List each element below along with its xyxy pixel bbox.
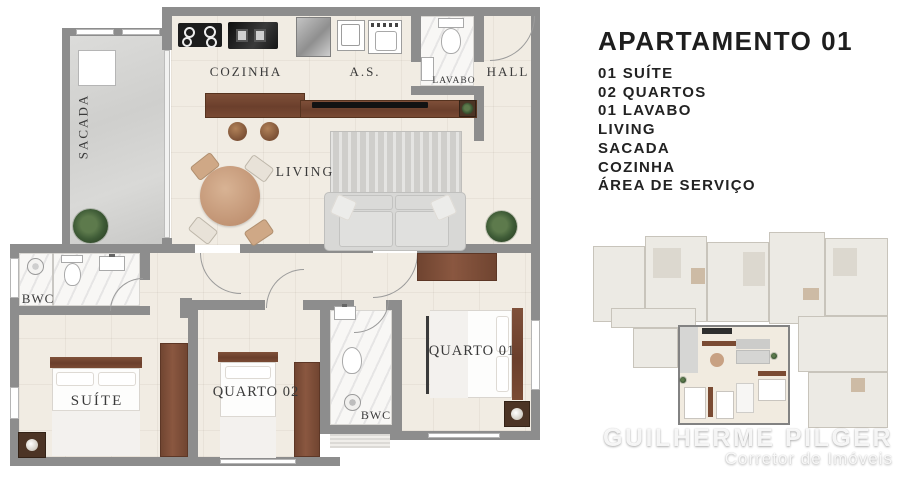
kitchen-counter bbox=[205, 93, 305, 118]
lavabo-toilet bbox=[438, 18, 464, 28]
quarto01-wardrobe bbox=[417, 253, 497, 281]
mini-plan-cell bbox=[808, 372, 888, 428]
wall-lavabo-hall bbox=[474, 7, 484, 62]
watermark-broker-title: Corretor de Imóveis bbox=[725, 449, 893, 469]
feature-item: 02 QUARTOS bbox=[598, 84, 756, 103]
wall-kitchen-left bbox=[162, 7, 172, 50]
label-hall: HALL bbox=[480, 65, 536, 78]
shower-head-icon bbox=[27, 258, 44, 275]
label-living: LIVING bbox=[260, 165, 350, 179]
building-overview-plan bbox=[593, 228, 895, 432]
quarto01-window-bottom bbox=[428, 433, 500, 438]
burner-icon bbox=[182, 37, 192, 47]
suite-nightstand bbox=[18, 432, 46, 458]
feature-item: ÁREA DE SERVIÇO bbox=[598, 177, 756, 196]
mini-plan-cell bbox=[633, 328, 678, 368]
floor-plan: SACADA COZINHA A.S. LAVABO HALL LIVING B… bbox=[0, 0, 560, 482]
counter-stool bbox=[260, 122, 279, 141]
feature-item: 01 SUÍTE bbox=[598, 65, 756, 84]
sink-bowl-icon bbox=[236, 29, 248, 42]
decor-plant-pot bbox=[459, 100, 476, 117]
wall-balcony-left bbox=[62, 28, 70, 247]
feature-item: COZINHA bbox=[598, 159, 756, 178]
suite-window bbox=[10, 387, 19, 419]
lamp-icon bbox=[511, 408, 523, 420]
balcony-window-2 bbox=[122, 29, 160, 35]
fridge bbox=[296, 17, 331, 57]
quarto02-bed-headboard bbox=[218, 352, 278, 362]
balcony-corner-window bbox=[78, 50, 116, 86]
mini-bwc bbox=[736, 383, 754, 413]
mini-wardrobe bbox=[758, 371, 786, 376]
feature-item: SACADA bbox=[598, 140, 756, 159]
mini-bed bbox=[716, 391, 734, 419]
mini-table bbox=[710, 353, 724, 367]
bwc-social-toilet-bowl bbox=[342, 347, 362, 374]
quarto01-nightstand bbox=[504, 401, 530, 427]
floorplan-marketing-image: SACADA COZINHA A.S. LAVABO HALL LIVING B… bbox=[0, 0, 900, 482]
wall-quarto02-top bbox=[192, 300, 265, 310]
mini-plan-cell bbox=[769, 232, 825, 324]
bwc-suite-toilet-bowl bbox=[64, 263, 81, 286]
wall-mid-left bbox=[10, 244, 195, 253]
label-bwc-social: BWC bbox=[352, 409, 400, 421]
faucet-icon bbox=[109, 254, 115, 257]
wall-bwc-suite-right bbox=[140, 244, 150, 280]
wall-suite-quarto02 bbox=[188, 307, 198, 466]
balcony-sliding-door bbox=[164, 50, 170, 238]
label-quarto02: QUARTO 02 bbox=[200, 385, 312, 400]
faucet-icon bbox=[342, 304, 347, 307]
feature-item: 01 LAVABO bbox=[598, 102, 756, 121]
sofa bbox=[324, 192, 466, 251]
quarto02-bed-blanket bbox=[220, 416, 276, 458]
kitchen-sink-counter bbox=[228, 22, 278, 49]
tv bbox=[312, 102, 428, 108]
feature-list: 01 SUÍTE 02 QUARTOS 01 LAVABO LIVING SAC… bbox=[598, 65, 756, 196]
page-title: APARTAMENTO 01 bbox=[598, 26, 853, 57]
washing-machine bbox=[368, 20, 402, 54]
bwc-suite-sink bbox=[99, 256, 125, 271]
cooktop bbox=[178, 23, 222, 47]
mini-plan-accent bbox=[803, 288, 819, 300]
balcony-window-1 bbox=[76, 29, 114, 35]
quarto02-window bbox=[220, 459, 296, 464]
quarto01-window-right bbox=[531, 320, 540, 390]
feature-item: LIVING bbox=[598, 121, 756, 140]
living-plant bbox=[486, 211, 517, 242]
label-suite: SUÍTE bbox=[47, 394, 147, 409]
media-panel-rug bbox=[330, 131, 462, 195]
label-bwc-suite: BWC bbox=[16, 292, 60, 305]
suite-bed-headboard bbox=[50, 357, 142, 368]
lamp-icon bbox=[26, 439, 38, 451]
mini-wardrobe bbox=[708, 387, 713, 417]
lavabo-toilet-bowl bbox=[441, 28, 461, 54]
shaft-louver bbox=[330, 434, 390, 448]
mini-sofa bbox=[736, 350, 770, 364]
suite-wardrobe bbox=[160, 343, 188, 457]
dining-table bbox=[200, 166, 260, 226]
label-sacada: SACADA bbox=[77, 84, 90, 170]
mini-plant-icon bbox=[680, 377, 686, 383]
mini-plan-highlighted-unit bbox=[678, 325, 790, 425]
label-cozinha: COZINHA bbox=[196, 65, 296, 78]
sink-bowl-icon bbox=[254, 29, 266, 42]
mini-plan-cell bbox=[798, 316, 888, 372]
mini-plan-accent bbox=[691, 268, 705, 284]
mini-plan-shade bbox=[743, 252, 765, 286]
burner-icon bbox=[206, 37, 217, 48]
bwc-social-sink bbox=[334, 306, 356, 320]
suite-bed-pillow bbox=[56, 372, 94, 386]
pot-plant-icon bbox=[462, 103, 473, 114]
washer-door-icon bbox=[375, 31, 397, 51]
suite-bed-blanket bbox=[52, 410, 140, 456]
suite-bed-pillow bbox=[98, 372, 136, 386]
mini-bed bbox=[758, 379, 786, 401]
label-area-servico: A.S. bbox=[335, 65, 395, 78]
wall-as-lavabo bbox=[411, 7, 421, 62]
mini-plant-icon bbox=[771, 353, 777, 359]
mini-plan-shade bbox=[653, 248, 681, 278]
tank-basin-icon bbox=[341, 24, 360, 46]
balcony-plant bbox=[73, 209, 108, 243]
mini-plan-shade bbox=[833, 248, 857, 276]
label-quarto01: QUARTO 01 bbox=[418, 344, 526, 359]
label-lavabo: LAVABO bbox=[424, 77, 484, 87]
quarto01-bed-pillow bbox=[496, 356, 509, 392]
bwc-suite-toilet bbox=[61, 255, 83, 263]
mini-plan-accent bbox=[851, 378, 865, 392]
laundry-tank bbox=[337, 20, 365, 51]
counter-stool bbox=[228, 122, 247, 141]
quarto02-bed-pillow bbox=[225, 366, 271, 379]
mini-rug bbox=[736, 339, 770, 349]
wall-bwc-social-left bbox=[320, 300, 330, 425]
mini-balcony bbox=[680, 327, 698, 373]
quarto02-wardrobe bbox=[294, 362, 320, 457]
mini-bed bbox=[684, 387, 706, 419]
mini-appliances bbox=[702, 328, 732, 334]
washer-controls-icon bbox=[371, 23, 399, 27]
